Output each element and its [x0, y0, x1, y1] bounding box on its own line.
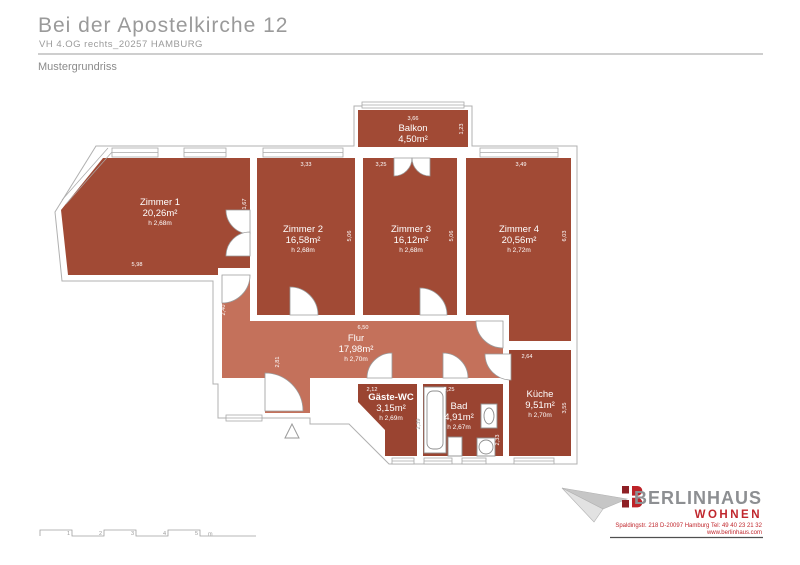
- room-area: 4,50m²: [398, 134, 428, 145]
- room-name: Flur: [348, 333, 364, 344]
- room-area: 4,91m²: [444, 412, 474, 423]
- footer: BERLINHAUS WOHNEN Spaldingstr. 218 D-200…: [562, 486, 763, 538]
- dim-label: 5,06: [347, 231, 353, 242]
- floorplan-canvas: Bei der Apostelkirche 12 VH 4.OG rechts_…: [0, 0, 800, 565]
- room-height: h 2,68m: [148, 220, 172, 227]
- window: [424, 458, 452, 464]
- scale-bar-line: [40, 530, 256, 536]
- page-subtitle: VH 4.OG rechts_20257 HAMBURG: [39, 39, 203, 50]
- room-height: h 2,68m: [291, 247, 315, 254]
- room-name: Gäste-WC: [368, 392, 414, 403]
- dim-label: 1,67: [242, 199, 248, 210]
- room-area: 16,12m²: [394, 235, 429, 246]
- sink-basin-icon: [484, 408, 494, 424]
- room-height: h 2,70m: [344, 356, 368, 363]
- dim-label: 2,81: [275, 357, 281, 368]
- dim-label: 3,66: [408, 116, 419, 122]
- room-area: 20,56m²: [502, 235, 537, 246]
- window: [263, 148, 343, 157]
- plane-icon: [562, 488, 627, 522]
- room-name: Zimmer 1: [140, 197, 180, 208]
- brand-subname: WOHNEN: [695, 509, 762, 521]
- dim-label: 2,40: [221, 305, 227, 316]
- label-kueche: Küche 9,51m² h 2,70m: [525, 389, 555, 419]
- floorplan-page: Bei der Apostelkirche 12 VH 4.OG rechts_…: [0, 0, 800, 565]
- dim-label: 5,98: [132, 262, 143, 268]
- dim-label: 1,23: [459, 124, 465, 135]
- room-name: Küche: [527, 389, 554, 400]
- dim-label: 2,12: [367, 387, 378, 393]
- brand-website: www.berlinhaus.com: [706, 530, 762, 536]
- scale-tick-label: 1: [67, 531, 70, 537]
- room-height: h 2,70m: [528, 412, 552, 419]
- scale-tick-label: 2: [99, 531, 102, 537]
- dim-label: 3,55: [562, 403, 568, 414]
- window-balcony: [362, 102, 464, 108]
- brand-name: BERLINHAUS: [634, 488, 762, 508]
- plan-type-label: Mustergrundriss: [38, 61, 117, 73]
- dim-label: 3,33: [301, 162, 312, 168]
- scale-unit-label: m: [208, 532, 213, 538]
- window: [480, 148, 558, 157]
- room-area: 3,15m²: [376, 403, 406, 414]
- dim-label: 2,39: [416, 419, 422, 430]
- window: [112, 148, 158, 157]
- dim-label: 2,33: [495, 435, 501, 446]
- toilet-bowl-icon: [479, 440, 493, 454]
- dim-label: 6,50: [358, 325, 369, 331]
- room-name: Zimmer 3: [391, 224, 431, 235]
- room-name: Zimmer 2: [283, 224, 323, 235]
- entrance-arrow-icon: [285, 424, 299, 438]
- dim-label: 3,49: [516, 162, 527, 168]
- dim-label: 2,25: [444, 387, 455, 393]
- washer-icon: [448, 437, 462, 456]
- dim-label: 5,06: [449, 231, 455, 242]
- scale-bar: 1 2 3 4 5 m: [40, 530, 256, 538]
- window: [392, 458, 414, 464]
- window: [462, 458, 486, 464]
- room-height: h 2,72m: [507, 247, 531, 254]
- room-area: 20,26m²: [143, 208, 178, 219]
- room-height: h 2,67m: [447, 424, 471, 431]
- page-title: Bei der Apostelkirche 12: [38, 14, 288, 37]
- brand-address: Spaldingstr. 218 D-20097 Hamburg Tel: 49…: [615, 523, 762, 529]
- room-height: h 2,68m: [399, 247, 423, 254]
- room-name: Zimmer 4: [499, 224, 539, 235]
- scale-tick-label: 4: [163, 531, 166, 537]
- scale-tick-label: 5: [195, 531, 198, 537]
- room-area: 16,58m²: [286, 235, 321, 246]
- dim-label: 6,03: [562, 231, 568, 242]
- room-name: Balkon: [398, 123, 427, 134]
- window: [226, 415, 262, 421]
- room-area: 17,98m²: [339, 344, 374, 355]
- dim-label: 3,25: [376, 162, 387, 168]
- bathtub-inner-icon: [427, 391, 443, 449]
- scale-tick-label: 3: [131, 531, 134, 537]
- window: [514, 458, 554, 464]
- label-balkon: Balkon 4,50m²: [398, 123, 428, 145]
- window: [184, 148, 226, 157]
- room-area: 9,51m²: [525, 400, 555, 411]
- header: Bei der Apostelkirche 12 VH 4.OG rechts_…: [38, 14, 763, 73]
- room-height: h 2,69m: [379, 415, 403, 422]
- dim-label: 2,64: [522, 354, 533, 360]
- room-name: Bad: [451, 401, 468, 412]
